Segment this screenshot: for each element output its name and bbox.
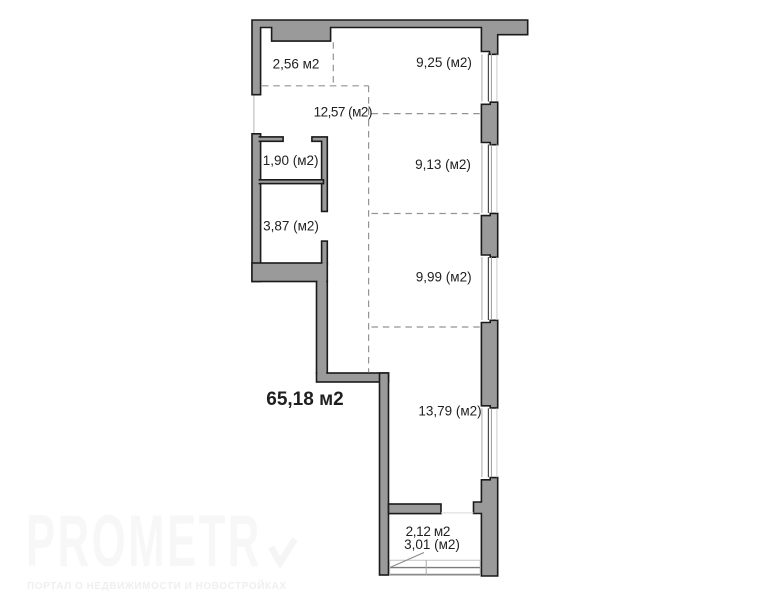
svg-text:65,18 м2: 65,18 м2: [266, 389, 343, 410]
svg-text:3,87 (м2): 3,87 (м2): [263, 219, 319, 234]
svg-text:2,56 м2: 2,56 м2: [273, 56, 320, 71]
svg-text:1,90 (м2): 1,90 (м2): [263, 153, 319, 168]
svg-text:PROMETR: PROMETR: [26, 501, 262, 582]
svg-text:9,13 (м2): 9,13 (м2): [415, 157, 471, 172]
svg-text:13,79 (м2): 13,79 (м2): [418, 404, 481, 419]
svg-text:9,25 (м2): 9,25 (м2): [416, 55, 472, 70]
svg-text:12,57 (м2): 12,57 (м2): [314, 105, 372, 120]
svg-text:9,99 (м2): 9,99 (м2): [416, 269, 472, 284]
svg-text:3,01 (м2): 3,01 (м2): [404, 537, 460, 552]
svg-text:ПОРТАЛ О НЕДВИЖИМОСТИ И НОВОСТ: ПОРТАЛ О НЕДВИЖИМОСТИ И НОВОСТРОЙКАХ: [27, 579, 287, 592]
